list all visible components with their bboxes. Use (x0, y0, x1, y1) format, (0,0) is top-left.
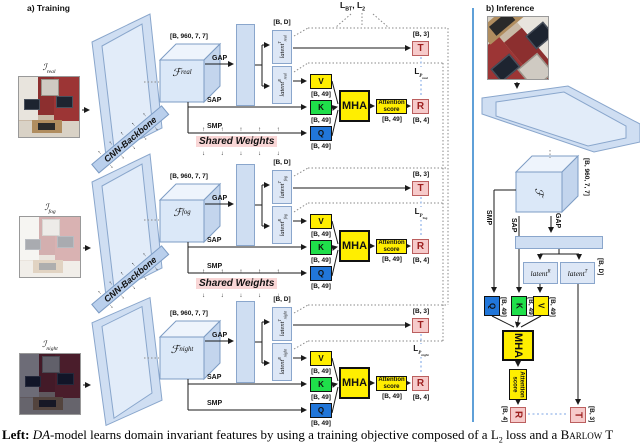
value-box-real: V (310, 74, 332, 89)
tokens-dim-q-real: [B, 49] (304, 143, 338, 150)
attention-score-inference: Attentionscore (509, 369, 527, 400)
key-box-inference: K (511, 296, 527, 316)
latent-dim-inference: [B, D] (597, 258, 604, 275)
translation-head-night: T (412, 318, 429, 333)
rotation-head-night: R (412, 376, 429, 391)
rotation-head-inference: R (510, 407, 526, 423)
attention-score-real: Attentionscore (376, 99, 407, 114)
pose-loss-night: LPnight (403, 344, 439, 357)
smp-label-real: SMP (207, 123, 222, 130)
smp-label-inference: SMP (485, 210, 492, 225)
query-box-real: Q (310, 126, 332, 141)
latent-dim-fog: [B, D] (264, 159, 300, 166)
cnn-backbone-plane-inference (482, 86, 640, 152)
latent-t-real: latentTreal (272, 30, 292, 64)
loss-bt-l2-label: LBT, L2 (340, 0, 365, 13)
translation-dim-fog: [B, 3] (407, 171, 435, 178)
gap-label-fog: GAP (212, 195, 227, 202)
input-label-real: ℐreal (18, 62, 80, 75)
tokens-dim-k-inference: [B, 49] (527, 297, 534, 317)
rotation-dim-fog: [B, 4] (407, 257, 435, 264)
sap-label-night: SAP (207, 374, 221, 381)
latent-t-night: latentTnight (272, 307, 292, 341)
value-box-fog: V (310, 214, 332, 229)
translation-head-fog: T (412, 181, 429, 196)
latent-dim-real: [B, D] (264, 19, 300, 26)
mha-block-fog: MHA (339, 230, 370, 262)
attention-score-night: Attentionscore (376, 376, 407, 391)
tokens-dim-v-night: [B, 49] (304, 368, 338, 375)
translation-dim-inference: [B, 3] (588, 406, 595, 422)
translation-head-inference: T (570, 407, 586, 423)
section-divider (472, 8, 474, 422)
sap-label-fog: SAP (207, 237, 221, 244)
latent-t-inference: latentT (560, 262, 595, 284)
translation-head-real: T (412, 41, 429, 56)
mha-block-inference: MHA (502, 330, 534, 361)
feature-cube-label-real: ℱreal (162, 66, 202, 79)
feature-cube-label-inference: ℱ (524, 176, 554, 208)
tokens-dim-v-real: [B, 49] (304, 91, 338, 98)
pooled-feature-bar-fog (236, 164, 255, 246)
latent-r-inference: latentR (523, 262, 558, 284)
training-section-title: a) Training (27, 3, 70, 13)
tokens-dim-v-fog: [B, 49] (304, 231, 338, 238)
latent-t-fog: latentTfog (272, 170, 292, 204)
rotation-dim-real: [B, 4] (407, 117, 435, 124)
key-box-fog: K (310, 240, 332, 255)
gap-label-real: GAP (212, 55, 227, 62)
input-image-fog (19, 216, 81, 278)
shared-weights-label-2: Shared Weights (196, 278, 277, 289)
tokens-dim-score-night: [B, 49] (374, 393, 410, 400)
input-image-night (19, 353, 81, 415)
pooled-feature-bar-night (236, 301, 255, 383)
input-label-night: ℐnight (19, 339, 81, 352)
pose-loss-real: LPreal (403, 67, 439, 80)
tokens-dim-score-fog: [B, 49] (374, 256, 410, 263)
key-box-real: K (310, 100, 332, 115)
smp-label-fog: SMP (207, 263, 222, 270)
attention-score-fog: Attentionscore (376, 239, 407, 254)
query-box-inference: Q (484, 296, 500, 316)
feature-dim-inference: [B, 960, 7, 7] (583, 158, 590, 196)
gap-label-night: GAP (212, 332, 227, 339)
shared-weights-label-1: Shared Weights (196, 136, 277, 147)
tokens-dim-q-fog: [B, 49] (304, 283, 338, 290)
value-box-night: V (310, 351, 332, 366)
mha-block-night: MHA (339, 367, 370, 399)
rotation-head-real: R (412, 99, 429, 114)
mha-block-real: MHA (339, 90, 370, 122)
key-box-night: K (310, 377, 332, 392)
feature-cube-label-fog: ℱfog (162, 206, 202, 219)
pooled-feature-bar-inference (515, 236, 603, 249)
tokens-dim-k-night: [B, 49] (304, 394, 338, 401)
pooled-feature-bar-real (236, 24, 255, 106)
feature-cube-label-night: ℱnight (162, 343, 202, 356)
query-box-night: Q (310, 403, 332, 418)
pose-loss-fog: LPfog (403, 207, 439, 220)
translation-dim-real: [B, 3] (407, 31, 435, 38)
input-image-inference (487, 16, 549, 80)
query-box-fog: Q (310, 266, 332, 281)
value-box-inference: V (533, 296, 549, 316)
latent-r-fog: latentRfog (272, 206, 292, 244)
input-image-real (18, 76, 80, 138)
figure-caption: Left: DA-model learns domain invariant f… (2, 427, 640, 445)
sap-label-real: SAP (207, 97, 221, 104)
shared-weights-arrows-down (202, 151, 287, 157)
smp-label-night: SMP (207, 400, 222, 407)
latent-r-night: latentRnight (272, 343, 292, 381)
tokens-dim-k-real: [B, 49] (304, 117, 338, 124)
rotation-dim-inference: [B, 4] (501, 406, 508, 422)
feature-dim-fog: [B, 960, 7, 7] (160, 173, 218, 180)
latent-r-real: latentRreal (272, 66, 292, 104)
feature-dim-night: [B, 960, 7, 7] (160, 310, 218, 317)
translation-dim-night: [B, 3] (407, 308, 435, 315)
feature-dim-real: [B, 960, 7, 7] (160, 33, 218, 40)
tokens-dim-q-inference: [B, 49] (500, 297, 507, 317)
tokens-dim-q-night: [B, 49] (304, 420, 338, 427)
gap-label-inference: GAP (554, 213, 561, 228)
rotation-head-fog: R (412, 239, 429, 254)
tokens-dim-k-fog: [B, 49] (304, 257, 338, 264)
input-label-fog: ℐfog (19, 202, 81, 215)
sap-label-inference: SAP (510, 218, 517, 232)
inference-section-title: b) Inference (486, 3, 534, 13)
tokens-dim-v-inference: [B, 49] (549, 297, 556, 317)
tokens-dim-score-real: [B, 49] (374, 116, 410, 123)
rotation-dim-night: [B, 4] (407, 394, 435, 401)
figure-architecture-diagram: a) Training b) Inference LBT, L2 ℐreal ℐ… (0, 0, 640, 447)
latent-dim-night: [B, D] (264, 296, 300, 303)
